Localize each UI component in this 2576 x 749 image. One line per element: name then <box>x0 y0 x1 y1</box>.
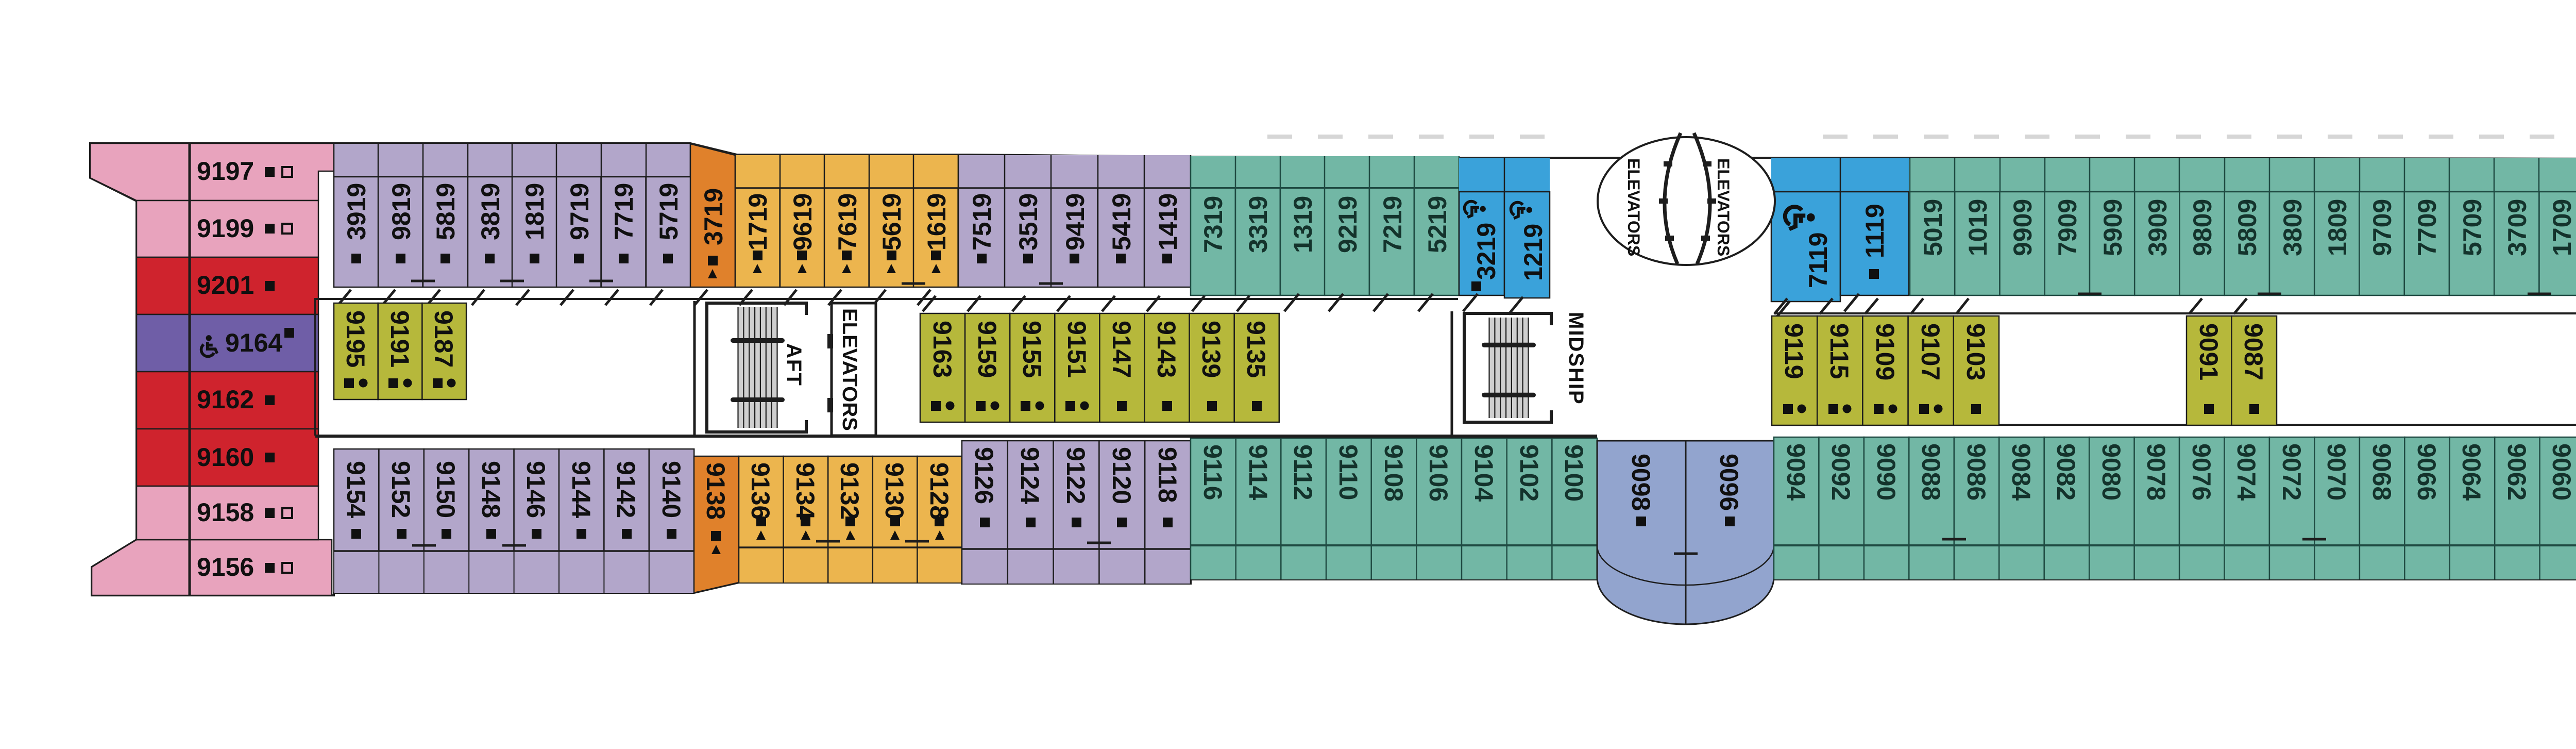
svg-text:9078: 9078 <box>2142 443 2171 501</box>
svg-text:9092: 9092 <box>1826 443 1855 501</box>
svg-text:9070: 9070 <box>2322 443 2351 501</box>
svg-text:9128: 9128 <box>925 462 954 520</box>
svg-text:9084: 9084 <box>2007 443 2036 501</box>
svg-text:3819: 3819 <box>476 183 505 240</box>
svg-text:9164: 9164 <box>225 328 282 357</box>
svg-text:ELEVATORS: ELEVATORS <box>838 308 861 431</box>
svg-text:ELEVATORS: ELEVATORS <box>1624 158 1643 256</box>
svg-text:9087: 9087 <box>2239 323 2268 380</box>
svg-text:9103: 9103 <box>1961 323 1990 380</box>
svg-text:5709: 5709 <box>2458 199 2487 256</box>
svg-text:ELEVATORS: ELEVATORS <box>1714 158 1733 256</box>
svg-text:1219: 1219 <box>1519 224 1548 281</box>
svg-text:9112: 9112 <box>1289 444 1317 500</box>
svg-text:9140: 9140 <box>657 461 686 518</box>
svg-text:9147: 9147 <box>1107 321 1136 378</box>
svg-text:9114: 9114 <box>1244 444 1273 501</box>
svg-text:9110: 9110 <box>1334 444 1363 500</box>
svg-text:3709: 3709 <box>2503 199 2532 256</box>
svg-text:9082: 9082 <box>2052 443 2080 501</box>
svg-text:7719: 7719 <box>609 183 638 240</box>
svg-text:9062: 9062 <box>2502 443 2531 501</box>
svg-text:7219: 7219 <box>1378 196 1407 253</box>
svg-text:9150: 9150 <box>431 461 460 518</box>
svg-text:9122: 9122 <box>1061 447 1090 504</box>
svg-text:9158: 9158 <box>197 498 254 527</box>
svg-text:9195: 9195 <box>341 310 370 368</box>
svg-text:9066: 9066 <box>2412 443 2441 501</box>
svg-text:9138: 9138 <box>701 462 730 520</box>
svg-text:7119: 7119 <box>1804 232 1833 288</box>
svg-text:9096: 9096 <box>1715 454 1743 511</box>
svg-text:7909: 7909 <box>2053 199 2082 256</box>
svg-text:9197: 9197 <box>197 157 254 186</box>
svg-text:1709: 1709 <box>2548 199 2576 256</box>
svg-text:MIDSHIP: MIDSHIP <box>1565 312 1587 405</box>
svg-text:9102: 9102 <box>1515 444 1544 502</box>
svg-text:9160: 9160 <box>197 443 254 472</box>
svg-text:9142: 9142 <box>612 461 640 518</box>
svg-text:9104: 9104 <box>1469 444 1498 502</box>
svg-text:5419: 5419 <box>1107 193 1136 251</box>
svg-text:9107: 9107 <box>1916 323 1945 380</box>
svg-text:9074: 9074 <box>2232 443 2261 501</box>
svg-text:9130: 9130 <box>880 462 909 520</box>
svg-text:9154: 9154 <box>342 461 370 518</box>
svg-text:9809: 9809 <box>2188 199 2217 256</box>
svg-text:AFT: AFT <box>783 343 805 387</box>
svg-text:9819: 9819 <box>387 183 416 240</box>
svg-text:9060: 9060 <box>2547 443 2576 501</box>
svg-text:9143: 9143 <box>1152 321 1181 378</box>
svg-text:9156: 9156 <box>197 553 254 581</box>
svg-text:9090: 9090 <box>1872 443 1901 501</box>
svg-text:7619: 7619 <box>833 193 862 251</box>
svg-text:9152: 9152 <box>386 461 415 518</box>
svg-text:7519: 7519 <box>968 193 996 251</box>
svg-text:9151: 9151 <box>1062 321 1091 378</box>
svg-text:9116: 9116 <box>1198 444 1227 500</box>
svg-text:9088: 9088 <box>1917 443 1945 501</box>
svg-text:9139: 9139 <box>1197 321 1226 378</box>
svg-text:5819: 5819 <box>431 183 460 240</box>
svg-text:1419: 1419 <box>1154 193 1182 251</box>
svg-text:9134: 9134 <box>791 462 820 520</box>
svg-text:5619: 5619 <box>877 193 906 251</box>
svg-text:9119: 9119 <box>1780 323 1808 379</box>
svg-text:9136: 9136 <box>746 462 775 520</box>
svg-text:9091: 9091 <box>2194 323 2223 380</box>
svg-text:9124: 9124 <box>1015 447 1044 504</box>
svg-text:9118: 9118 <box>1153 447 1182 503</box>
svg-text:1819: 1819 <box>520 183 549 240</box>
svg-text:9148: 9148 <box>477 461 505 518</box>
svg-text:1619: 1619 <box>922 193 951 251</box>
svg-text:1809: 1809 <box>2323 199 2352 256</box>
svg-text:9072: 9072 <box>2277 443 2306 501</box>
svg-text:5219: 5219 <box>1423 196 1452 253</box>
svg-text:3219: 3219 <box>1472 223 1501 280</box>
svg-text:9219: 9219 <box>1333 196 1362 253</box>
svg-text:3909: 3909 <box>2143 199 2172 256</box>
svg-text:9199: 9199 <box>197 214 254 243</box>
svg-text:9709: 9709 <box>2368 199 2397 256</box>
svg-text:9094: 9094 <box>1782 443 1810 501</box>
svg-text:7319: 7319 <box>1199 196 1228 253</box>
svg-text:3719: 3719 <box>699 188 728 245</box>
svg-text:9163: 9163 <box>928 321 957 378</box>
svg-text:9086: 9086 <box>1962 443 1991 501</box>
svg-text:9120: 9120 <box>1107 447 1136 504</box>
svg-text:9064: 9064 <box>2457 443 2486 501</box>
svg-text:1319: 1319 <box>1289 196 1317 253</box>
svg-text:3519: 3519 <box>1014 193 1043 251</box>
svg-text:5809: 5809 <box>2233 199 2262 256</box>
svg-text:9144: 9144 <box>567 461 596 518</box>
svg-text:1719: 1719 <box>743 193 772 251</box>
svg-text:5019: 5019 <box>1919 199 1947 256</box>
svg-text:9076: 9076 <box>2187 443 2216 501</box>
svg-text:9098: 9098 <box>1626 454 1655 511</box>
svg-text:9619: 9619 <box>788 193 817 251</box>
svg-text:9106: 9106 <box>1424 444 1453 502</box>
svg-text:9201: 9201 <box>197 271 254 299</box>
svg-text:9187: 9187 <box>429 310 458 368</box>
svg-text:9126: 9126 <box>970 447 998 504</box>
svg-text:9191: 9191 <box>385 310 414 368</box>
svg-text:3919: 3919 <box>342 183 371 240</box>
svg-text:9419: 9419 <box>1061 193 1090 251</box>
svg-text:9719: 9719 <box>565 183 594 240</box>
svg-text:9115: 9115 <box>1825 323 1854 379</box>
svg-text:9155: 9155 <box>1018 321 1046 378</box>
svg-text:9100: 9100 <box>1560 444 1588 502</box>
svg-text:1019: 1019 <box>1963 199 1992 256</box>
svg-text:5719: 5719 <box>654 183 683 240</box>
svg-text:9132: 9132 <box>835 462 864 520</box>
svg-text:5909: 5909 <box>2098 199 2127 256</box>
svg-text:1119: 1119 <box>1860 204 1889 258</box>
svg-text:9109: 9109 <box>1871 323 1900 380</box>
svg-text:9162: 9162 <box>197 385 254 414</box>
svg-text:9909: 9909 <box>2008 199 2037 256</box>
svg-text:9068: 9068 <box>2367 443 2396 501</box>
svg-text:9159: 9159 <box>973 321 1002 378</box>
svg-text:9146: 9146 <box>521 461 550 518</box>
svg-text:9080: 9080 <box>2097 443 2126 501</box>
svg-text:9135: 9135 <box>1242 321 1270 378</box>
svg-text:9108: 9108 <box>1379 444 1408 502</box>
svg-text:7709: 7709 <box>2413 199 2442 256</box>
svg-text:3319: 3319 <box>1244 196 1273 253</box>
svg-text:3809: 3809 <box>2278 199 2307 256</box>
